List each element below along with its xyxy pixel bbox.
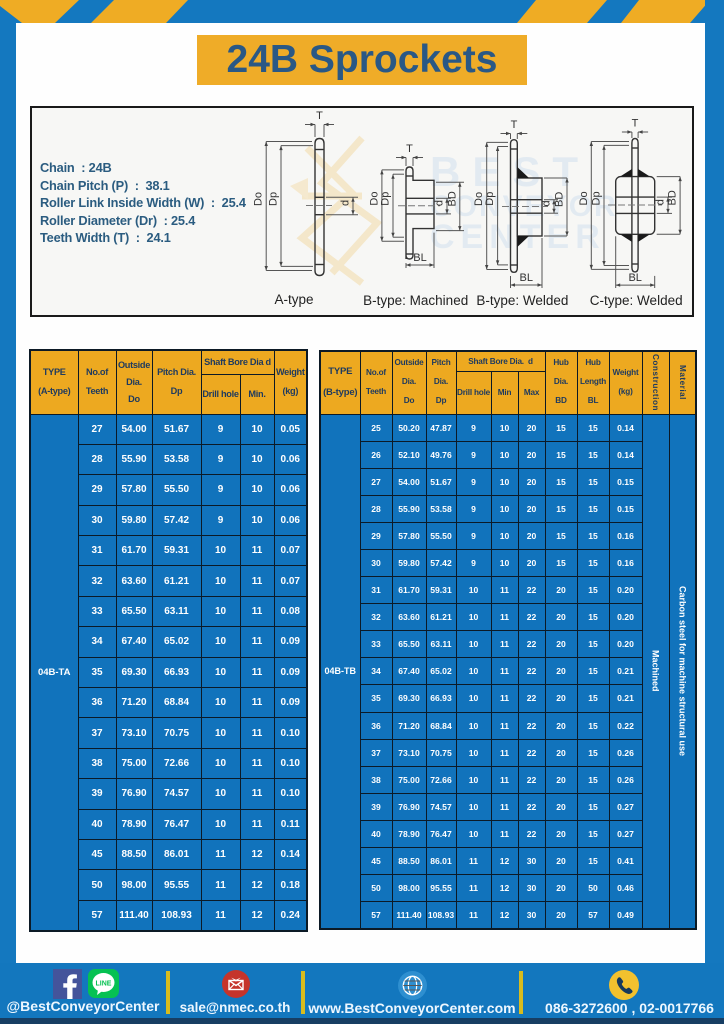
svg-text:Dp: Dp <box>591 191 603 205</box>
svg-text:d: d <box>541 200 553 206</box>
svg-text:BL: BL <box>628 272 641 284</box>
svg-text:BL: BL <box>520 272 533 284</box>
svg-text:T: T <box>406 143 413 155</box>
svg-text:T: T <box>316 110 323 122</box>
svg-text:Dp: Dp <box>380 192 392 206</box>
svg-text:LINE: LINE <box>96 981 112 988</box>
svg-text:BD: BD <box>446 191 458 206</box>
svg-text:d: d <box>655 199 667 205</box>
svg-text:C-type: Welded: C-type: Welded <box>590 293 683 308</box>
svg-text:BD: BD <box>667 190 679 205</box>
svg-text:d: d <box>340 200 352 206</box>
svg-text:BL: BL <box>413 252 426 264</box>
svg-text:Do: Do <box>253 192 265 206</box>
svg-text:B-type: Welded: B-type: Welded <box>476 293 568 308</box>
svg-text:A-type: A-type <box>274 292 313 307</box>
svg-text:Dp: Dp <box>268 192 280 206</box>
svg-text:Dp: Dp <box>484 192 496 206</box>
svg-text:T: T <box>511 119 518 131</box>
svg-text:B-type: Machined: B-type: Machined <box>363 293 468 308</box>
svg-text:d: d <box>434 200 446 206</box>
svg-text:T: T <box>632 118 639 130</box>
svg-text:BD: BD <box>554 192 566 207</box>
svg-text:Do: Do <box>578 191 590 205</box>
